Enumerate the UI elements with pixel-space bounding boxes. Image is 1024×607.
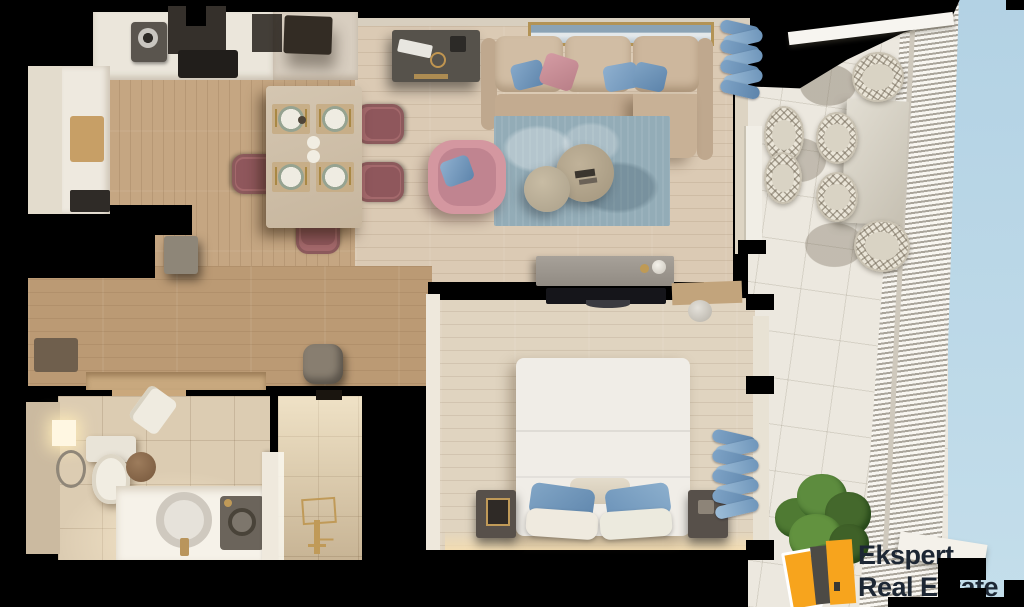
- chair-cushion: [824, 184, 849, 210]
- bed-pillow-white-left: [525, 508, 599, 541]
- counter-dark-item: [70, 190, 110, 212]
- kitchen-left-wall: [28, 66, 64, 214]
- chair-cushion: [824, 124, 849, 151]
- wicker-chair-4: [764, 152, 802, 204]
- bedroom-left-wall: [426, 294, 440, 550]
- wall-below-kitchen: [25, 205, 155, 278]
- coffee-machine-top: [138, 28, 158, 48]
- wall-below-kitchen-2: [150, 205, 192, 235]
- bed-pillow-white-right: [599, 508, 673, 541]
- chair-cushion: [772, 120, 796, 150]
- washer-door: [228, 508, 256, 536]
- plate-3: [278, 164, 304, 190]
- dining-chair-right-bottom: [356, 162, 404, 202]
- washer-knob: [224, 499, 232, 507]
- bedroom-pot: [688, 300, 712, 322]
- bath-divider-wall: [262, 452, 278, 560]
- tv-stand: [586, 300, 630, 308]
- salt-pepper-set: [307, 136, 320, 149]
- shower-room-floor: [278, 396, 362, 560]
- wall-blob-2: [958, 558, 986, 580]
- shower-door-gap: [316, 390, 342, 400]
- living-blue-curtains: [720, 26, 760, 130]
- wall-stub-bedroom-top: [746, 294, 774, 310]
- wall-stub-door: [738, 240, 766, 254]
- chair-cushion: [772, 164, 795, 191]
- gold-faucet: [180, 538, 189, 556]
- console-vase: [652, 260, 666, 274]
- chair-seat: [365, 167, 400, 197]
- balcony-door-frame: [744, 126, 762, 242]
- wicker-chair-5: [816, 172, 858, 222]
- wall-shower-bedroom: [360, 392, 428, 568]
- hood-notch: [186, 6, 206, 26]
- chair-cushion: [863, 230, 900, 261]
- corner-wall-bottom-right: [1004, 580, 1024, 607]
- counter-shadow-gap: [252, 14, 282, 52]
- table-lamp: [486, 498, 510, 526]
- bed-seam-1: [516, 430, 690, 432]
- bathroom-wall-light: [52, 420, 76, 446]
- coffee-table-small: [524, 166, 570, 212]
- logo-building-right: [826, 539, 856, 605]
- wicker-chair-3: [816, 112, 858, 164]
- desk-dark-box: [450, 36, 466, 52]
- shower-handle: [308, 544, 326, 547]
- shower-pipe: [314, 520, 320, 554]
- chair-cushion: [860, 61, 895, 92]
- sofa-armrest-right: [697, 38, 713, 160]
- entry-mat: [34, 338, 78, 372]
- kitchen-dark-appliance: [283, 15, 332, 55]
- shoe-shelf: [86, 372, 266, 390]
- towel-ring: [56, 450, 86, 488]
- desk-gold-strip: [414, 74, 448, 79]
- logo-window: [834, 582, 840, 591]
- plate-2: [322, 106, 348, 132]
- wall-stub-bedroom-mid: [746, 376, 774, 394]
- shower-glass-edge: [278, 452, 284, 560]
- pepper-mill: [298, 116, 306, 124]
- dining-chair-right-top: [356, 104, 404, 144]
- console-gold-cup: [640, 264, 649, 273]
- laundry-basket: [126, 452, 156, 482]
- bedroom-blue-curtains: [712, 436, 756, 556]
- cooktop: [178, 50, 238, 78]
- floor-plan-render: Ekspert Real Estate: [0, 0, 1024, 607]
- chair-seat: [365, 109, 400, 139]
- hallway-pouf: [303, 344, 343, 384]
- desk-gold-tray: [430, 52, 446, 68]
- fridge-cabinet: [164, 236, 198, 274]
- wall-corner-top-right: [1006, 0, 1024, 10]
- plate-4: [322, 164, 348, 190]
- cutting-board: [70, 116, 104, 162]
